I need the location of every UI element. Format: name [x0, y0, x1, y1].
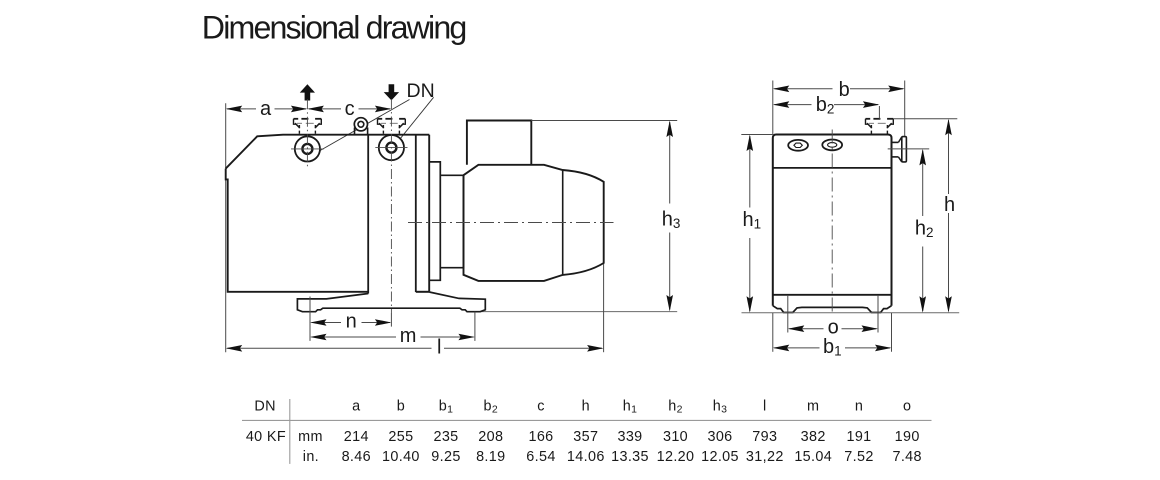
- svg-text:n: n: [855, 399, 863, 415]
- svg-text:310: 310: [663, 429, 688, 445]
- svg-text:12.20: 12.20: [657, 449, 695, 465]
- svg-text:b: b: [397, 399, 405, 415]
- svg-text:40 KF: 40 KF: [246, 429, 286, 445]
- svg-text:l: l: [763, 399, 767, 415]
- svg-text:b: b: [839, 79, 850, 101]
- svg-text:208: 208: [478, 429, 503, 445]
- svg-text:357: 357: [573, 429, 598, 445]
- svg-text:382: 382: [801, 429, 826, 445]
- svg-text:306: 306: [707, 429, 732, 445]
- svg-text:8.19: 8.19: [476, 449, 505, 465]
- svg-text:793: 793: [752, 429, 777, 445]
- svg-text:DN: DN: [407, 80, 435, 102]
- svg-text:a: a: [352, 399, 360, 415]
- svg-text:166: 166: [528, 429, 553, 445]
- svg-text:mm: mm: [298, 429, 323, 445]
- svg-text:255: 255: [388, 429, 413, 445]
- svg-text:h: h: [944, 194, 955, 216]
- svg-text:235: 235: [433, 429, 458, 445]
- svg-text:c: c: [345, 98, 355, 120]
- svg-text:in.: in.: [303, 449, 319, 465]
- svg-text:14.06: 14.06: [567, 449, 605, 465]
- svg-text:h: h: [582, 399, 590, 415]
- svg-text:m: m: [400, 325, 417, 347]
- svg-text:Dimensional drawing: Dimensional drawing: [202, 9, 466, 45]
- svg-text:214: 214: [344, 429, 369, 445]
- svg-text:7.52: 7.52: [844, 449, 873, 465]
- svg-text:190: 190: [895, 429, 920, 445]
- svg-text:15.04: 15.04: [794, 449, 832, 465]
- svg-text:13.35: 13.35: [611, 449, 649, 465]
- svg-text:8.46: 8.46: [342, 449, 371, 465]
- svg-text:6.54: 6.54: [526, 449, 555, 465]
- svg-text:l: l: [437, 337, 441, 359]
- svg-text:o: o: [903, 399, 911, 415]
- svg-text:7.48: 7.48: [892, 449, 921, 465]
- svg-text:c: c: [537, 399, 545, 415]
- svg-text:n: n: [346, 310, 357, 332]
- svg-text:m: m: [807, 399, 819, 415]
- svg-text:31,22: 31,22: [746, 449, 784, 465]
- svg-text:339: 339: [617, 429, 642, 445]
- svg-text:a: a: [260, 98, 272, 120]
- svg-text:10.40: 10.40: [382, 449, 420, 465]
- svg-text:DN: DN: [254, 399, 276, 415]
- svg-text:9.25: 9.25: [431, 449, 460, 465]
- svg-text:191: 191: [846, 429, 871, 445]
- svg-text:12.05: 12.05: [701, 449, 739, 465]
